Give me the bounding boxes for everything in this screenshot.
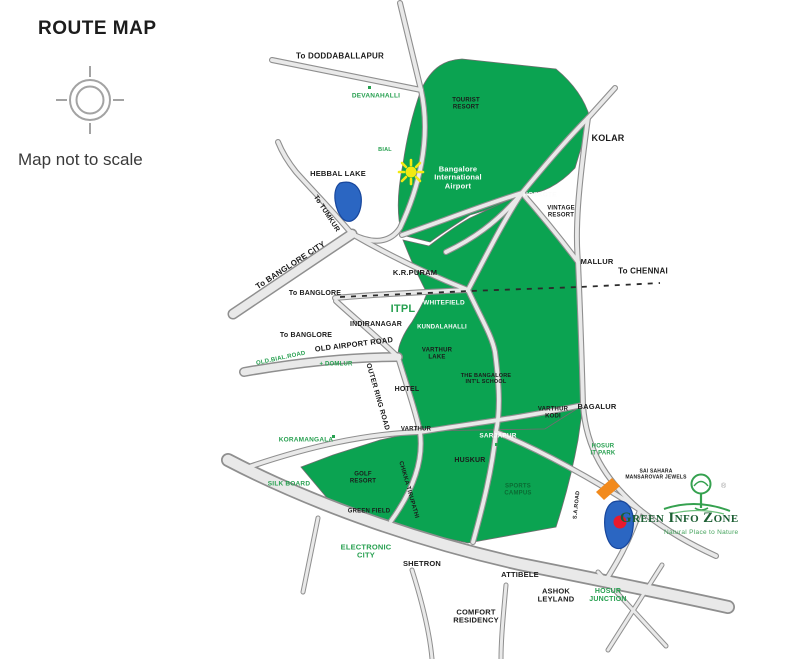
green-info-zone-tagline: Natural Place to Nature <box>664 529 738 536</box>
green-info-zone-logo-title: Green Info Zone <box>620 510 770 527</box>
map-canvas <box>0 0 800 659</box>
green-area <box>301 59 590 543</box>
route-map-page: ROUTE MAP Map not to scale <box>0 0 800 659</box>
registered-mark: ® <box>721 483 726 490</box>
sun-airport-icon <box>399 160 423 184</box>
